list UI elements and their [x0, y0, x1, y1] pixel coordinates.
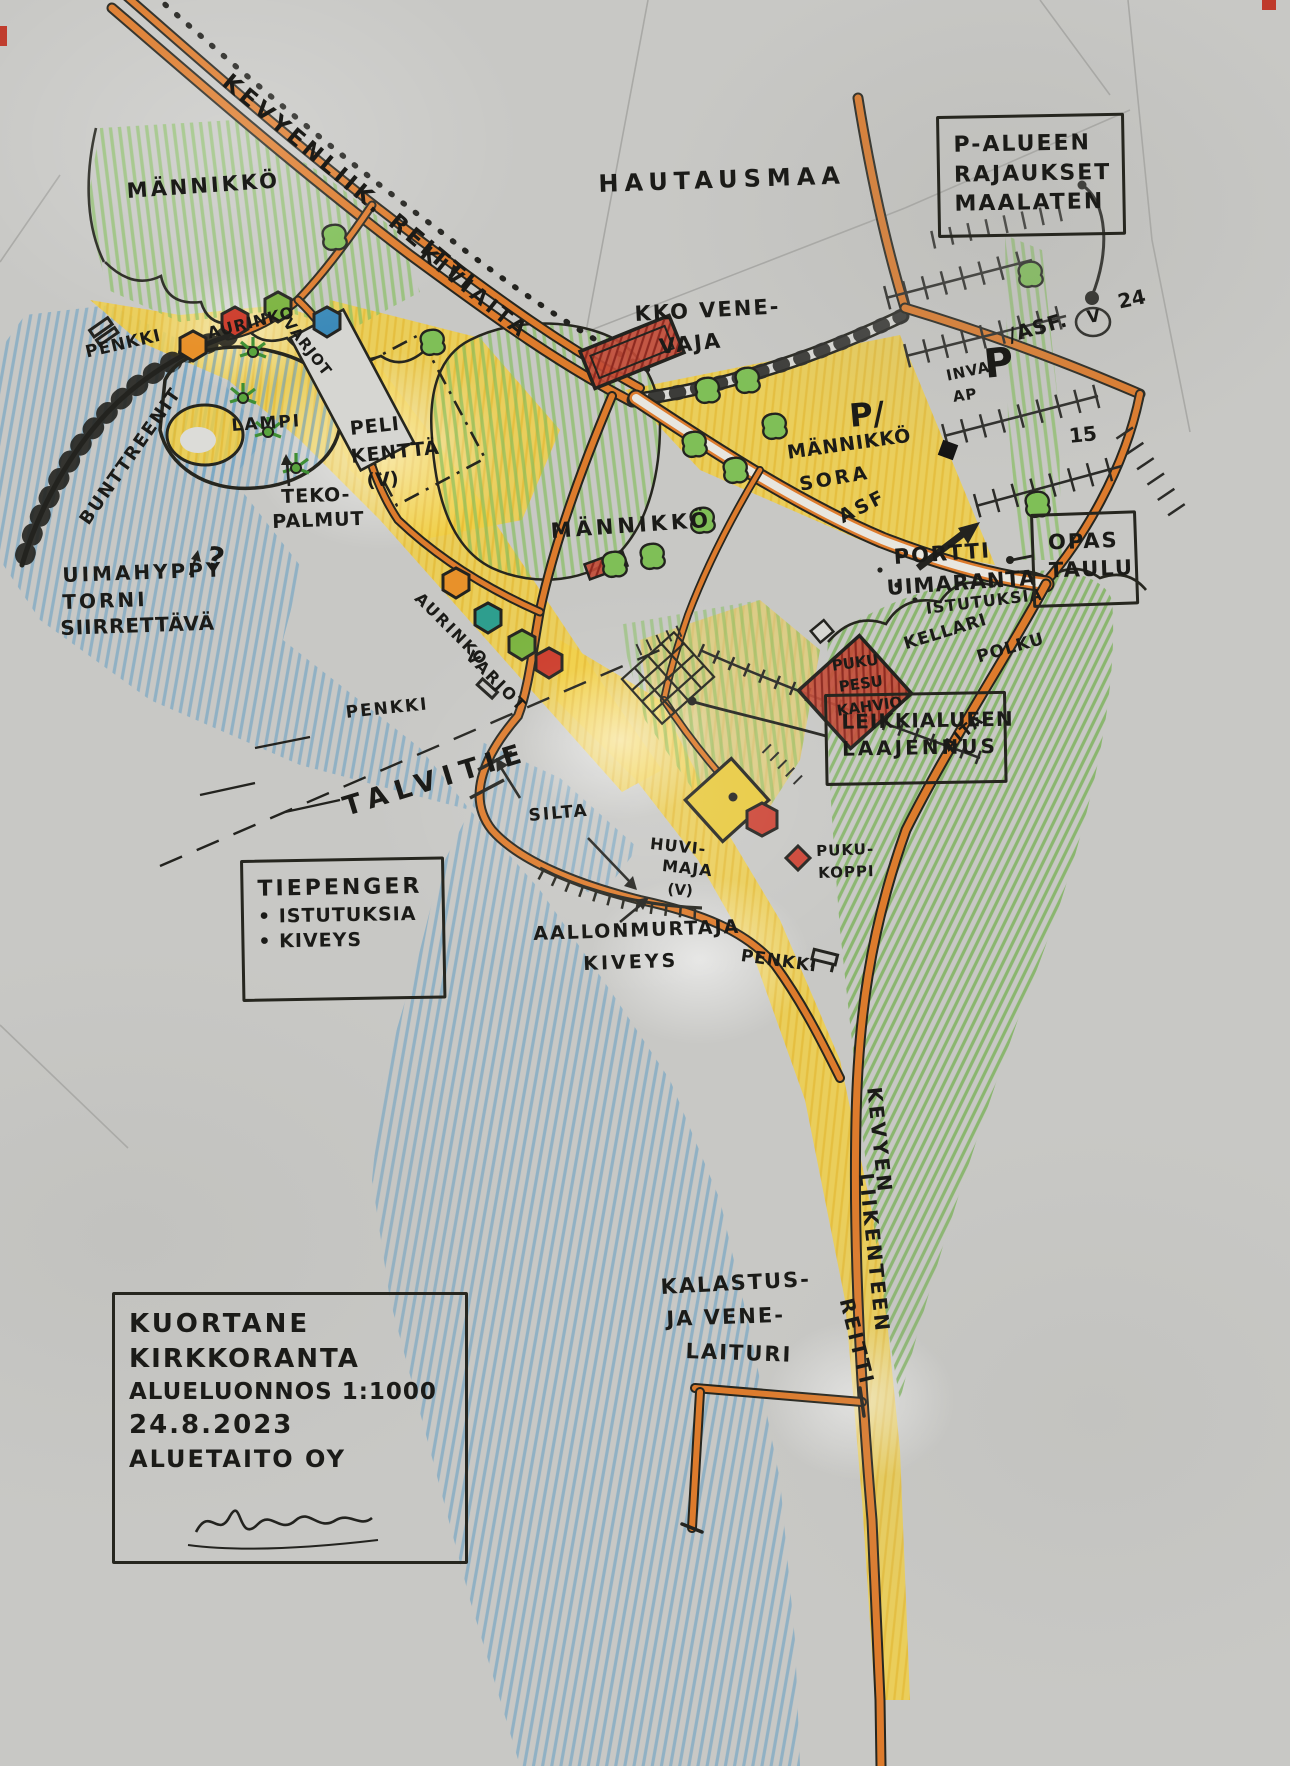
bunttreenit-label: BUNTTREENIT	[77, 385, 186, 529]
callout-leikkialue: LEIKKIALUEENLAAJENNUS	[824, 691, 1008, 786]
callout-leikkialue-line-2: LAAJENNUS	[842, 733, 990, 763]
scanned-sketch-plan: KEVYENLIIK. REITTIMÄNNIKKÖHAUTAUSMAAKIVI…	[0, 0, 1290, 1766]
lampi-label: LAMPI	[231, 413, 302, 436]
mannikko-sora-2-label: SORA	[798, 464, 872, 496]
labels-layer: KEVYENLIIK. REITTIMÄNNIKKÖHAUTAUSMAAKIVI…	[0, 0, 1290, 1766]
callout-opastaulu-line-2: TAULU	[1049, 554, 1122, 585]
uimahyppy-1-label: UIMAHYPPY	[62, 559, 224, 586]
tekopalmut-2-label: PALMUT	[272, 510, 365, 533]
pelikentta-1-label: PELI	[349, 415, 401, 440]
kalastuslaituri-2-label: JA VENE-	[666, 1304, 785, 1330]
title-block-line-1: KUORTANE	[129, 1307, 451, 1342]
pukukoppi-1-label: PUKU-	[816, 842, 874, 860]
huvimaja-3-label: (V)	[667, 882, 693, 899]
title-block-line-2: KIRKKORANTA	[129, 1342, 451, 1377]
parking-15-count-label: 15	[1068, 423, 1098, 447]
puku-pesu-1-label: PUKU	[831, 652, 879, 674]
silta-label: SILTA	[528, 803, 589, 826]
v24-count-label: 24	[1116, 286, 1148, 312]
mannikko-nw-label: MÄNNIKKÖ	[126, 169, 281, 202]
penkki-center-label: PENKKI	[345, 696, 429, 722]
penkki-nw-label: PENKKI	[84, 328, 163, 363]
uimahyppy-question-label: ?	[203, 542, 227, 576]
aurinkovarjot-beach-2-label: VARJOT	[462, 648, 529, 715]
callout-p-alueen-line-2: RAJAUKSET	[954, 158, 1108, 190]
inva-2-label: AP	[952, 387, 979, 406]
callout-tiepenger-line-1: TIEPENGER	[257, 872, 427, 905]
uimahyppy-2-label: TORNI	[62, 589, 148, 613]
callout-p-alueen-line-3: MAALATEN	[954, 187, 1108, 219]
callout-tiepenger-line-2: • ISTUTUKSIA	[258, 901, 428, 930]
callout-p-alueen-line-1: P-ALUEEN	[953, 128, 1107, 160]
pukukoppi-2-label: KOPPI	[818, 864, 875, 882]
asf-v-label: /ASF.	[1006, 309, 1070, 346]
kalastuslaituri-1-label: KALASTUS-	[660, 1268, 811, 1298]
title-block: KUORTANEKIRKKORANTAALUELUONNOS 1:100024.…	[112, 1292, 468, 1564]
kalastuslaituri-3-label: LAITURI	[685, 1340, 793, 1366]
penkki-beach-label: PENKKI	[740, 948, 819, 976]
callout-tiepenger-line-3: • KIVEYS	[258, 927, 428, 956]
aallonmurtaja-1-label: AALLONMURTAJA	[533, 918, 741, 945]
portti-label: PORTTI	[893, 539, 992, 568]
hautausmaa-label: HAUTAUSMAA	[598, 163, 846, 197]
mannikko-center-label: MÄNNIKKÖ	[550, 509, 713, 542]
title-block-line-5: ALUETAITO OY	[129, 1443, 451, 1475]
mannikko-sora-1-label: MÄNNIKKÖ	[786, 427, 913, 464]
kiviaita-label: KIVIAITA	[416, 242, 533, 343]
kko-venevaja-line2-label: VAJA	[658, 329, 723, 358]
tekopalmut-1-label: TEKO-	[281, 486, 351, 508]
asf-street-label: ASF	[836, 487, 890, 528]
callout-leikkialue-line-1: LEIKKIALUEEN	[841, 706, 989, 736]
pelikentta-3-label: (V)	[366, 470, 399, 492]
title-block-line-3: ALUELUONNOS 1:1000	[129, 1377, 451, 1408]
aurinkovarjot-nw-2-label: VARJOT	[280, 316, 334, 380]
v-circled-label: V	[1086, 308, 1102, 328]
pelikentta-2-label: KENTTÄ	[350, 439, 441, 468]
aallonmurtaja-2-label: KIVEYS	[583, 952, 679, 975]
polku-label: POLKU	[975, 631, 1047, 667]
title-block-line-4: 24.8.2023	[129, 1408, 451, 1443]
talvitie-label: TALVITIE	[340, 739, 532, 822]
callout-opastaulu-line-1: OPAS	[1048, 526, 1121, 557]
huvimaja-2-label: MAJA	[661, 858, 713, 880]
uimahyppy-3-label: SIIRRETTÄVÄ	[60, 613, 215, 639]
huvimaja-1-label: HUVI-	[649, 836, 707, 859]
p-main-label: P	[982, 341, 1016, 386]
callout-tiepenger: TIEPENGER• ISTUTUKSIA• KIVEYS	[240, 856, 446, 1002]
kko-venevaja-line1-label: KKO VENE-	[634, 295, 781, 325]
callout-opastaulu: OPASTAULU	[1030, 510, 1139, 608]
p-sora-label: P/	[848, 397, 886, 434]
callout-p-alueen: P-ALUEENRAJAUKSETMAALATEN	[936, 113, 1126, 238]
